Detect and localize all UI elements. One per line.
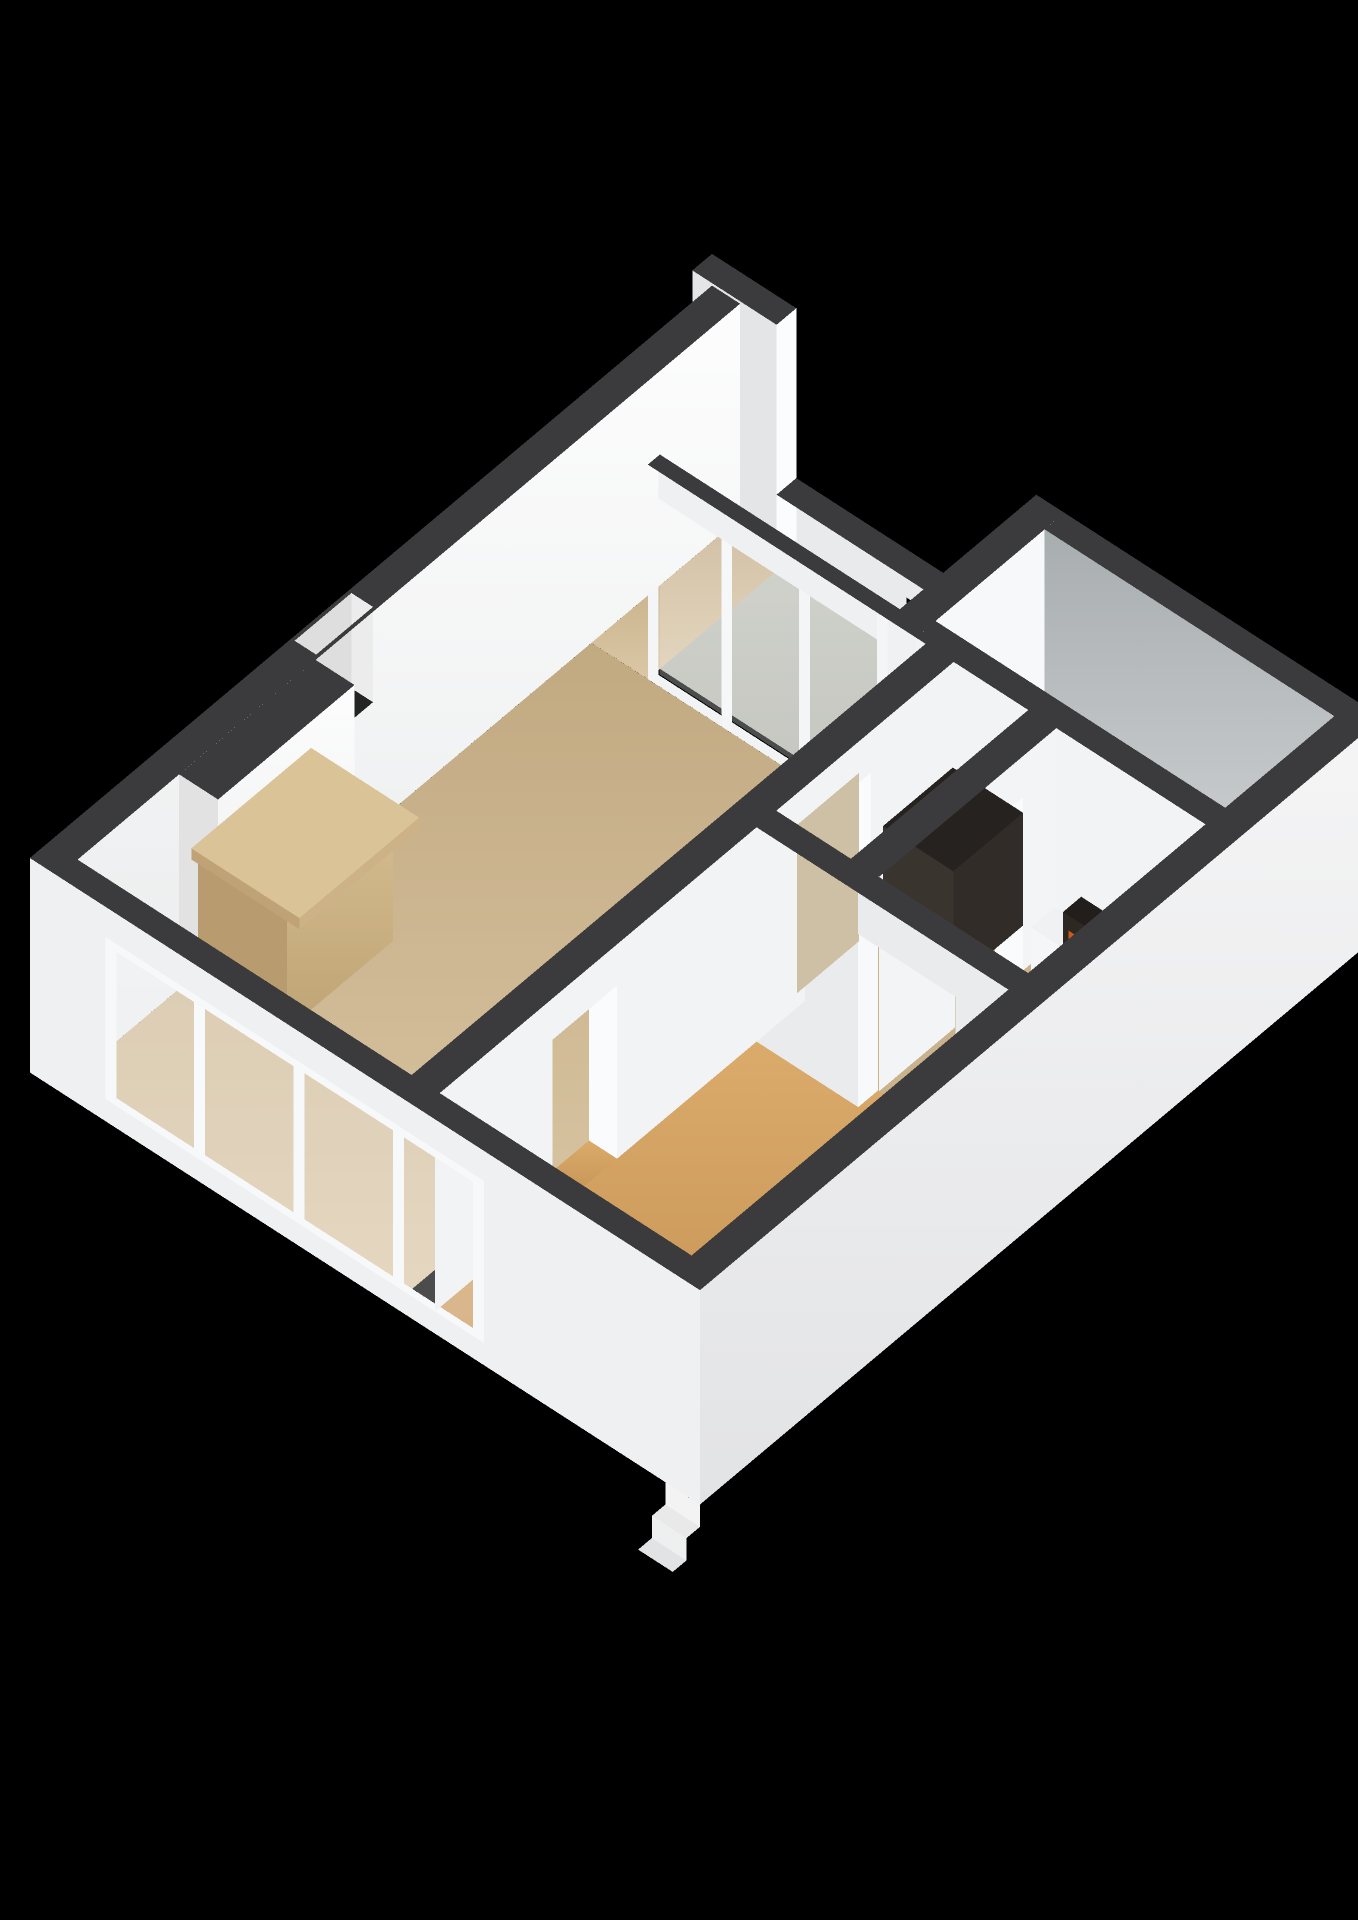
sw-window-frame-left <box>106 945 117 1098</box>
floor-plan-3d-render <box>0 0 1358 1920</box>
sw-window-mullion-2 <box>294 1066 305 1219</box>
chimney-recess-inner-n <box>351 593 373 702</box>
floor-plan-canvas <box>0 0 1358 1920</box>
sw-window-frame-right <box>473 1182 484 1335</box>
sw-window-mullion-3 <box>393 1130 404 1283</box>
wall-ne-stub-end <box>777 308 797 571</box>
